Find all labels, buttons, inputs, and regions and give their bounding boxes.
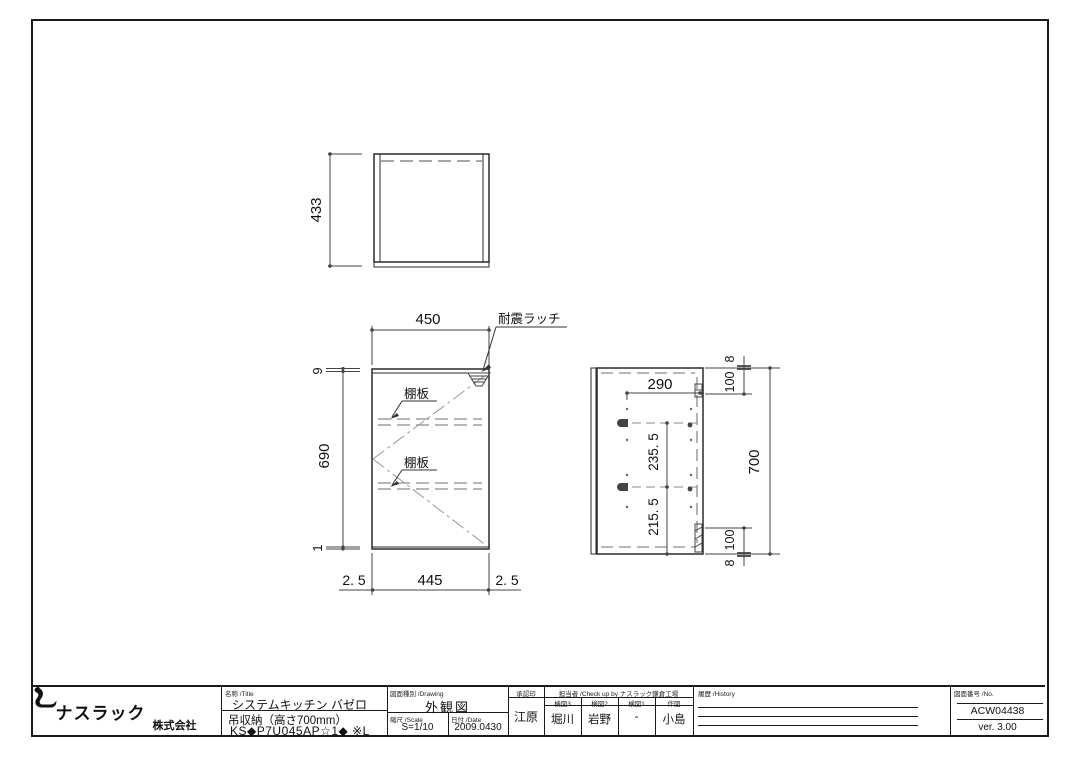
shelf-label-2: 棚板 [404, 455, 430, 470]
drawing-sheet: 433 [0, 0, 1080, 763]
dim-depth-433: 433 [308, 197, 325, 222]
checker-name: 岩野 [581, 711, 618, 727]
shelf-leader-2 [390, 470, 437, 487]
check-col-label: 検図3 [544, 698, 581, 708]
check-col-label: 検図1 [618, 698, 655, 708]
tb-divider [957, 703, 1043, 704]
company-suffix: 株式会社 [153, 717, 197, 737]
history-rule [698, 725, 918, 726]
dim-width-450: 450 [415, 311, 440, 328]
latch-symbol [468, 373, 490, 386]
dim-290: 290 [647, 376, 672, 393]
product-name: システムキッチン バゼロ [232, 696, 367, 713]
dim-top-9: 9 [310, 367, 325, 374]
latch-leader [481, 327, 567, 372]
drawing-number: ACW04438 [950, 705, 1045, 717]
scale-value: S=1/10 [387, 722, 448, 733]
dim-100-top: 100 [723, 372, 737, 393]
approver-name: 江原 [508, 708, 544, 725]
history-rule [698, 707, 918, 708]
dim-8-top: 8 [723, 355, 737, 362]
company-logo: ナスラック 株式会社 [31, 686, 221, 737]
top-view-dim-433 [328, 152, 362, 268]
dim-door-445: 445 [417, 572, 442, 589]
tb-divider [957, 719, 1043, 720]
front-view [372, 369, 490, 549]
latch-label: 耐震ラッチ [498, 312, 561, 326]
dim-700: 700 [746, 449, 763, 474]
dim-height-690: 690 [316, 443, 333, 468]
side-inner-dims [665, 421, 669, 556]
number-label: 図面番号 /No. [954, 688, 994, 698]
checker-name: 小島 [655, 711, 693, 727]
front-dim-450 [370, 326, 491, 365]
swan-icon [31, 686, 57, 710]
date-value: 2009.0430 [448, 722, 508, 733]
tb-divider [693, 686, 694, 737]
shelf-label-1: 棚板 [404, 386, 430, 401]
check-col-label: 検図2 [581, 698, 618, 708]
tb-divider [221, 686, 222, 737]
history-rule [698, 716, 918, 717]
dim-100-bottom: 100 [723, 530, 737, 551]
approval-label: 承認印 [508, 688, 544, 698]
dim-gap-left: 2. 5 [342, 572, 366, 588]
top-view [374, 154, 489, 267]
shelf-leader-1 [390, 401, 437, 419]
side-right-dims [705, 356, 780, 566]
dim-215-5: 215. 5 [646, 498, 661, 536]
dim-8-bottom: 8 [723, 559, 737, 566]
check-section-label: 担当者 /Check up by ナスラック鎌倉工場 [544, 688, 693, 698]
product-code: KS◆P7U045AP☆1◆ ※L [230, 724, 370, 738]
checker-name: 堀川 [544, 711, 581, 727]
dim-gap-right: 2. 5 [495, 572, 519, 588]
checker-name: - [618, 711, 655, 723]
history-label: 履歴 /History [698, 688, 735, 698]
dim-bottom-1: 1 [310, 544, 325, 551]
company-name: ナスラック [56, 699, 146, 724]
check-col-label: 作図 [655, 698, 693, 708]
dim-235-5: 235. 5 [646, 433, 661, 471]
cad-drawing: 433 [0, 0, 1080, 763]
drawing-version: ver. 3.00 [950, 722, 1045, 733]
